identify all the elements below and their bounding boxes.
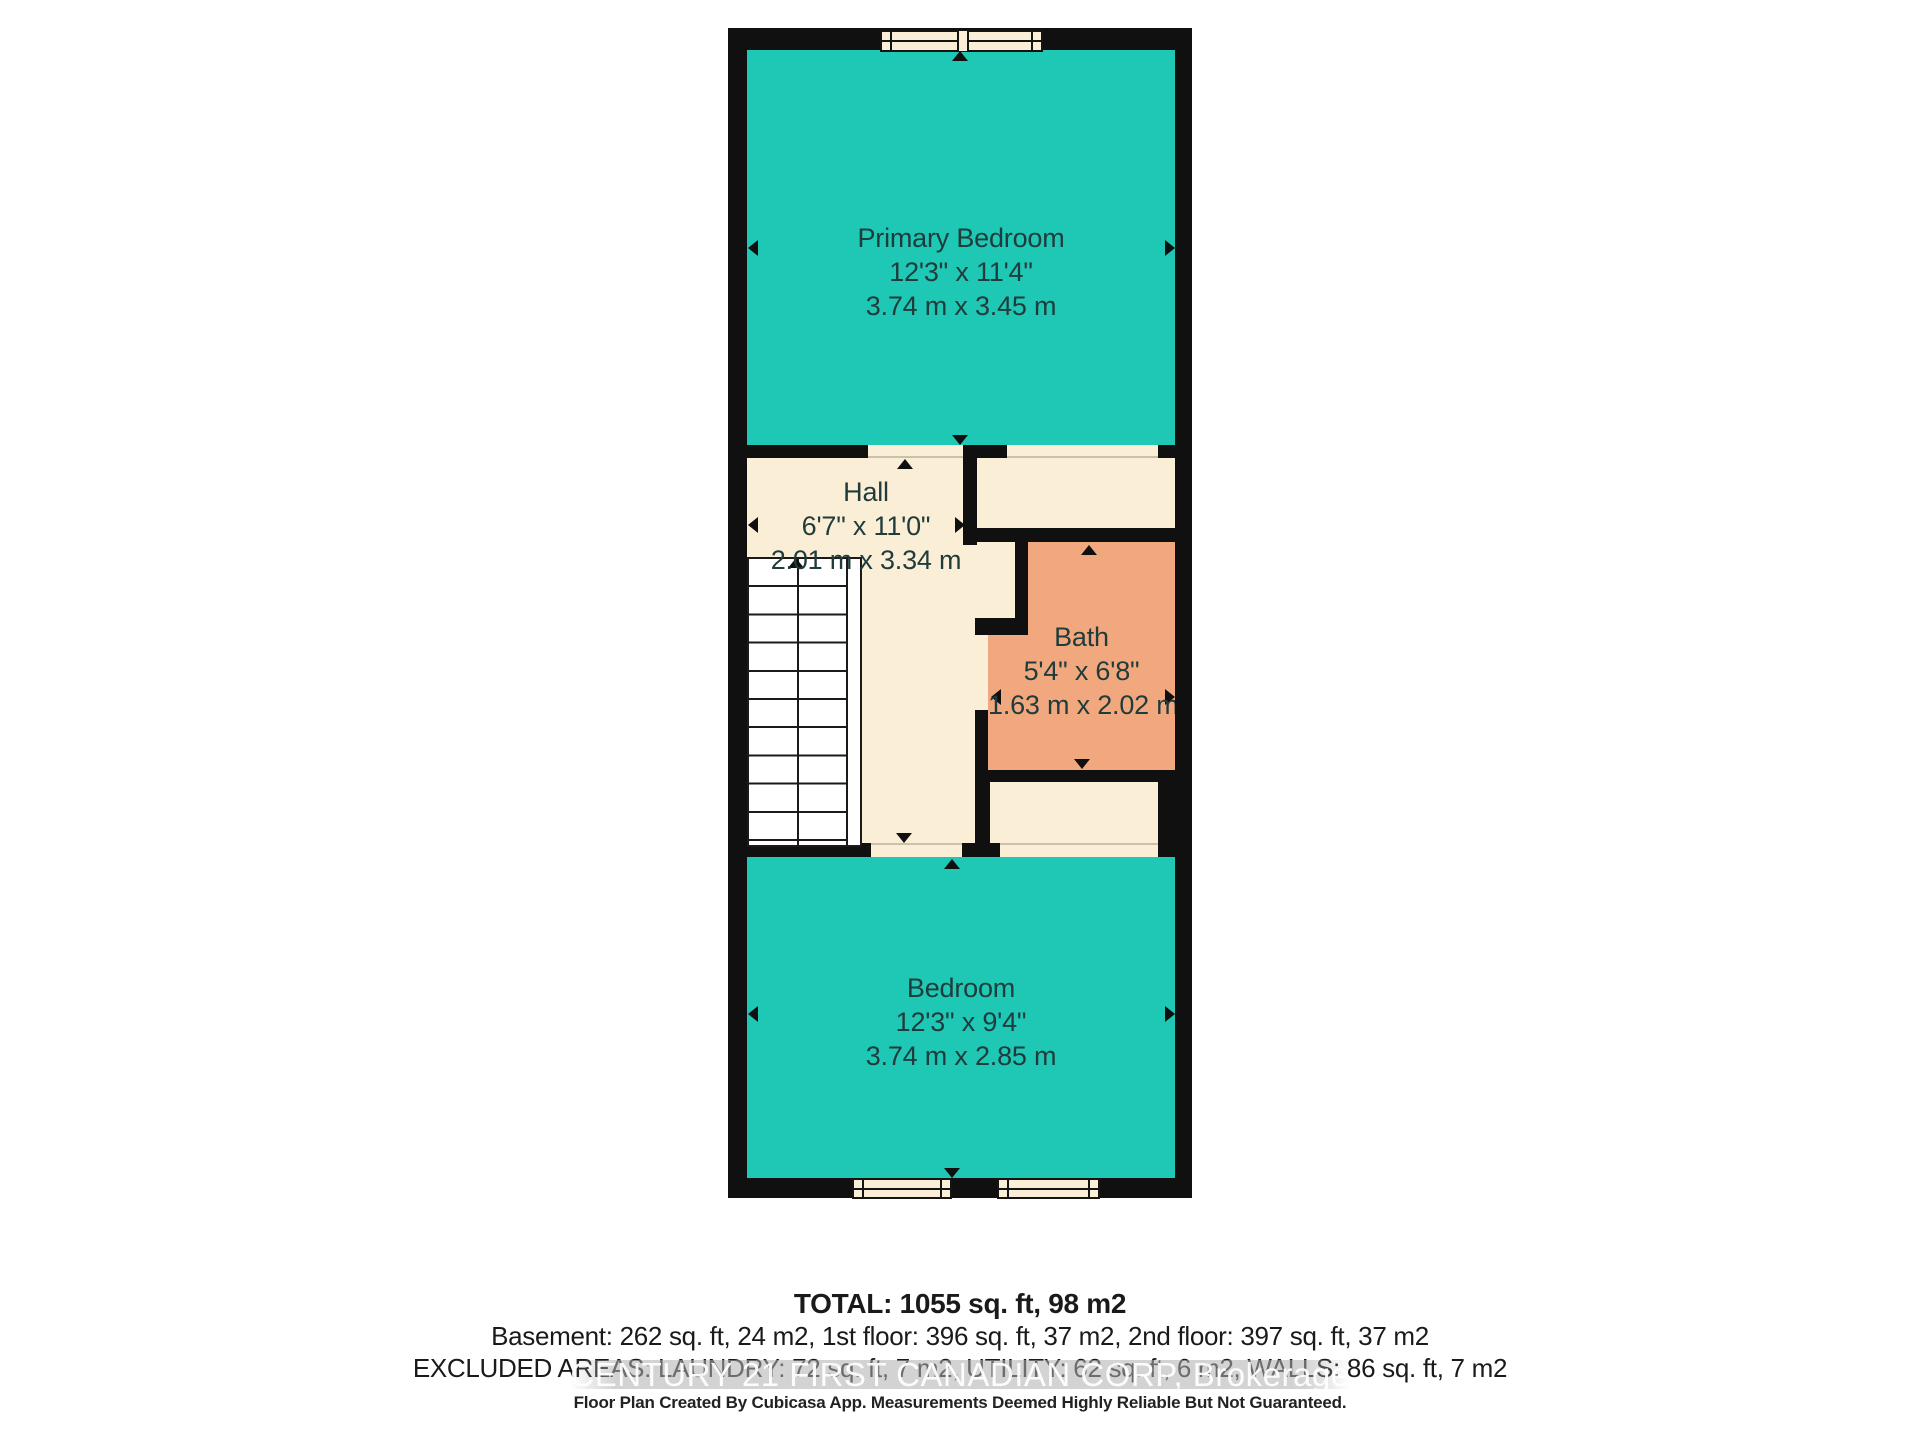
closet-bottom-opening bbox=[1000, 843, 1158, 857]
dimension-arrow-down-icon bbox=[952, 435, 968, 445]
wall-segment bbox=[1015, 542, 1028, 618]
room-label-hall: Hall 6'7" x 11'0" 2.01 m x 3.34 m bbox=[747, 475, 985, 577]
room-name: Bedroom bbox=[747, 971, 1175, 1005]
total-area-text: TOTAL: 1055 sq. ft, 98 m2 bbox=[0, 1288, 1920, 1320]
stair-divider bbox=[797, 559, 799, 845]
room-dim-imperial: 6'7" x 11'0" bbox=[747, 509, 985, 543]
closet-top-opening bbox=[1007, 445, 1158, 458]
dimension-arrow-up-icon bbox=[1081, 545, 1097, 555]
dimension-arrow-up-icon bbox=[944, 859, 960, 869]
dimension-arrow-down-icon bbox=[944, 1168, 960, 1178]
room-dim-metric: 2.01 m x 3.34 m bbox=[747, 543, 985, 577]
brokerage-watermark: CENTURY 21 FIRST CANADIAN CORP, Brokerag… bbox=[570, 1360, 1350, 1389]
room-name: Bath bbox=[988, 620, 1175, 654]
window-frame-line bbox=[1007, 1180, 1009, 1197]
room-dim-imperial: 5'4" x 6'8" bbox=[988, 654, 1175, 688]
dimension-arrow-down-icon bbox=[1074, 759, 1090, 769]
floor-plan: Primary Bedroom 12'3" x 11'4" 3.74 m x 3… bbox=[728, 28, 1192, 1198]
dimension-arrow-up-icon bbox=[952, 51, 968, 61]
staircase bbox=[747, 557, 862, 847]
door-opening-bedroom-hall bbox=[868, 445, 965, 458]
floor-areas-text: Basement: 262 sq. ft, 24 m2, 1st floor: … bbox=[0, 1320, 1920, 1352]
bath-door-opening bbox=[975, 635, 988, 710]
window-top bbox=[880, 30, 1043, 52]
room-dim-imperial: 12'3" x 11'4" bbox=[747, 255, 1175, 289]
wall-exterior-right bbox=[1175, 28, 1192, 1198]
window-frame-line bbox=[1031, 32, 1033, 50]
room-dim-metric: 3.74 m x 3.45 m bbox=[747, 289, 1175, 323]
door-opening-hall-bedroom bbox=[871, 843, 962, 857]
dimension-arrow-down-icon bbox=[896, 833, 912, 843]
wall-exterior-bottom bbox=[728, 1178, 1192, 1198]
window-bottom-left bbox=[852, 1178, 952, 1199]
window-frame-line bbox=[1088, 1180, 1090, 1197]
room-label-primary-bedroom: Primary Bedroom 12'3" x 11'4" 3.74 m x 3… bbox=[747, 221, 1175, 323]
window-mullion bbox=[957, 31, 969, 51]
room-label-bath: Bath 5'4" x 6'8" 1.63 m x 2.02 m bbox=[988, 620, 1175, 722]
disclaimer-text: Floor Plan Created By Cubicasa App. Meas… bbox=[0, 1392, 1920, 1414]
room-label-bedroom: Bedroom 12'3" x 9'4" 3.74 m x 2.85 m bbox=[747, 971, 1175, 1073]
window-frame-line bbox=[862, 1180, 864, 1197]
room-dim-imperial: 12'3" x 9'4" bbox=[747, 1005, 1175, 1039]
window-frame-line bbox=[890, 32, 892, 50]
room-dim-metric: 1.63 m x 2.02 m bbox=[988, 688, 1175, 722]
dimension-arrow-up-icon bbox=[897, 459, 913, 469]
window-frame-line bbox=[940, 1180, 942, 1197]
wall-exterior-left bbox=[728, 28, 747, 1198]
room-dim-metric: 3.74 m x 2.85 m bbox=[747, 1039, 1175, 1073]
room-name: Primary Bedroom bbox=[747, 221, 1175, 255]
room-name: Hall bbox=[747, 475, 985, 509]
room-closet-top bbox=[977, 458, 1175, 528]
window-bottom-right bbox=[997, 1178, 1100, 1199]
room-closet-bottom bbox=[990, 782, 1158, 843]
